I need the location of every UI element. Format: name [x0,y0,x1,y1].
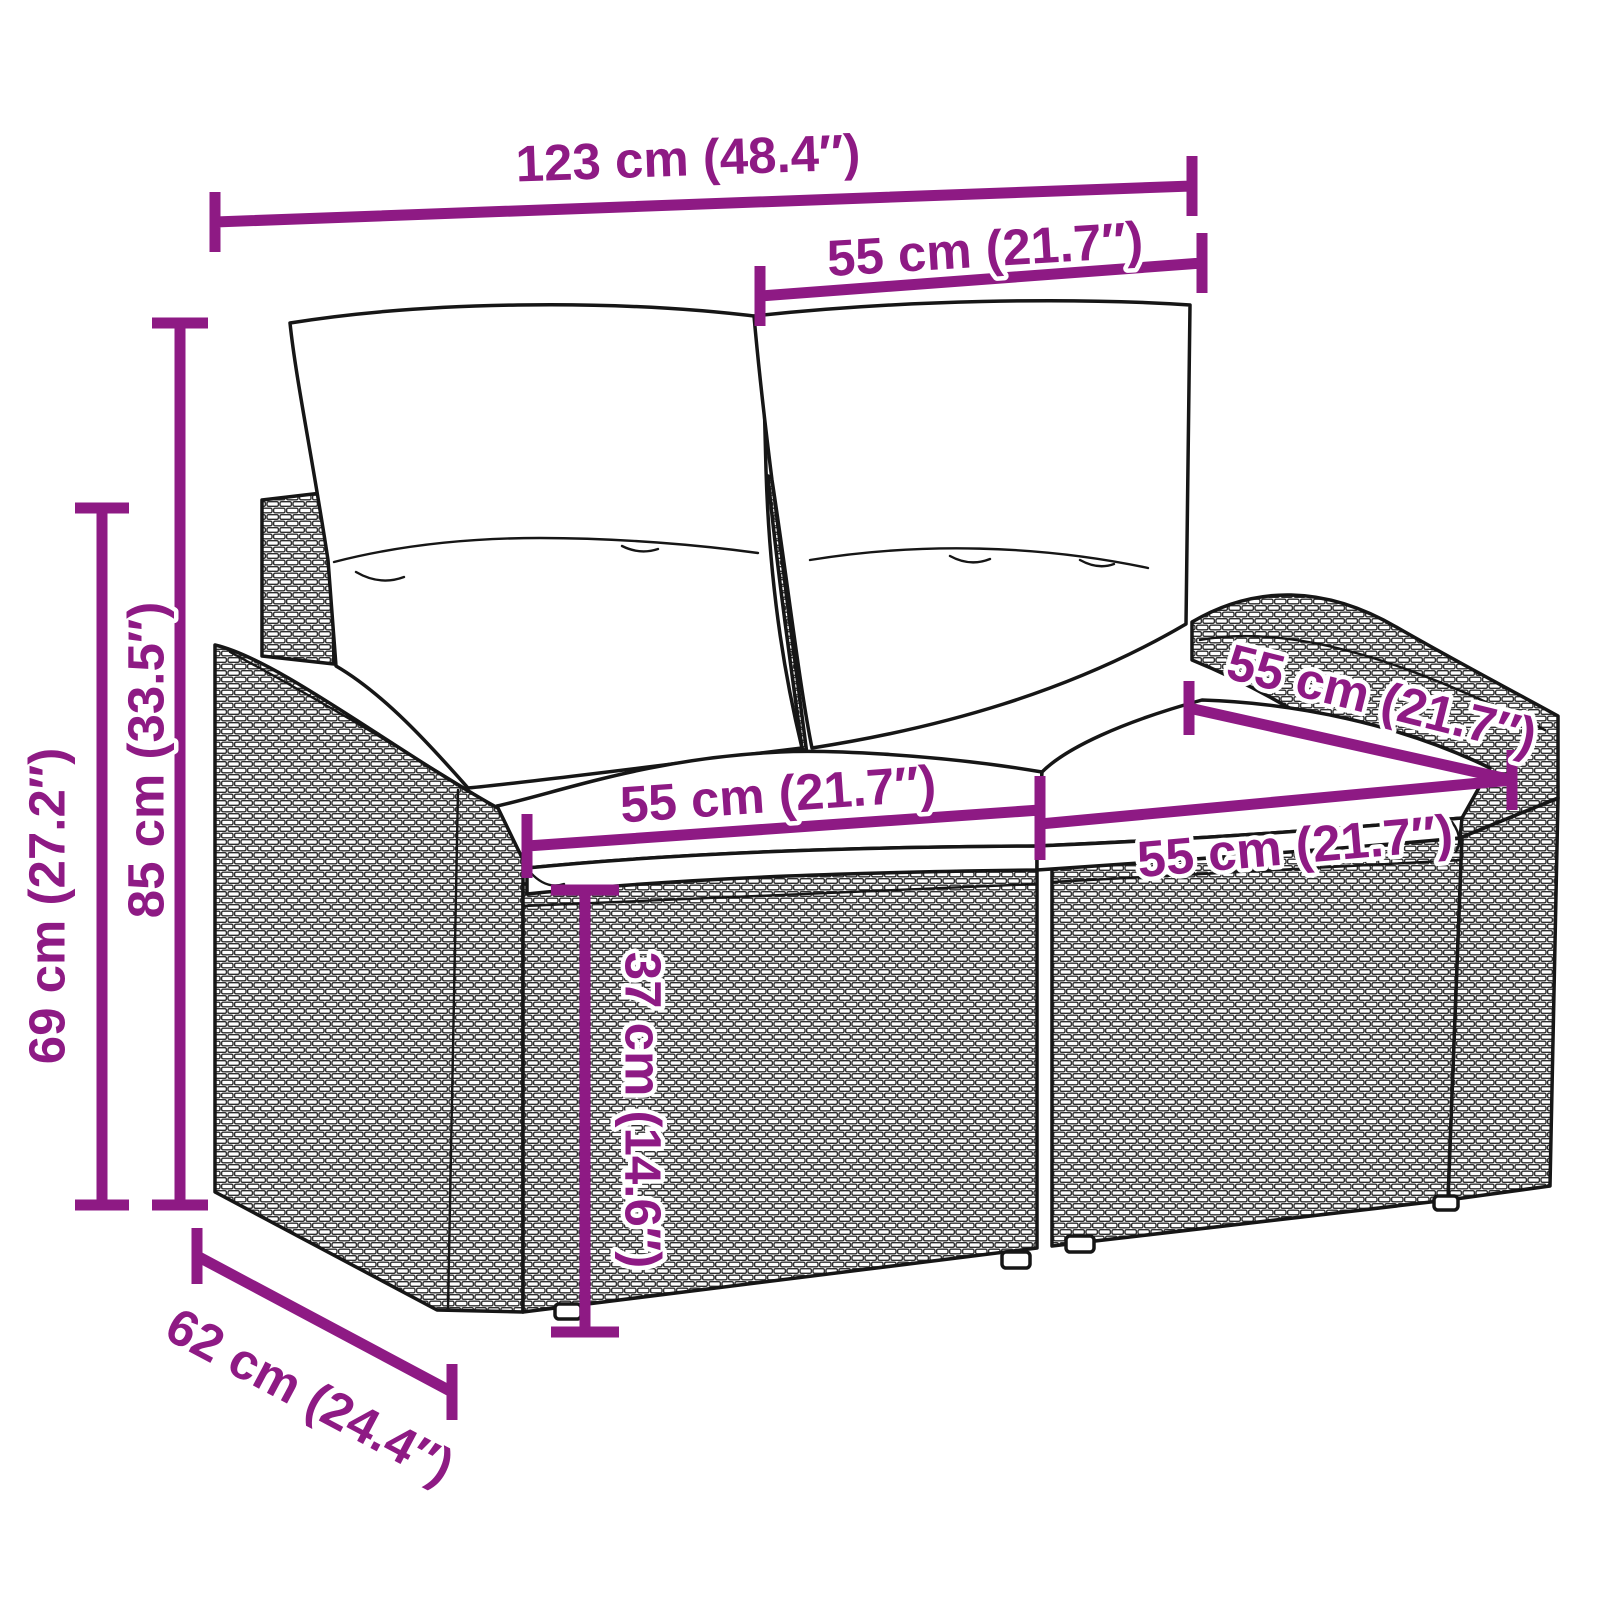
diagram-canvas: 123 cm (48.4″) 55 cm (21.7″) 85 cm (33.5… [0,0,1600,1600]
sofa-foot [555,1304,581,1319]
back-pillow-right [754,301,1190,748]
dim-frame-height-label: 69 cm (27.2″) [19,748,76,1064]
sofa-foot [1434,1196,1458,1210]
back-pillow-left [290,305,802,788]
dim-depth-label: 62 cm (24.4″) [157,1297,463,1496]
sofa-foot [1002,1252,1030,1268]
dim-total-height-label: 85 cm (33.5″) [118,602,175,918]
dim-overall-width-label: 123 cm (48.4″) [515,124,862,193]
right-side-panel [1448,798,1558,1200]
dim-frame-height: 69 cm (27.2″) [19,508,130,1205]
seat-base-right [1052,837,1462,1246]
seat-base-left [523,861,1037,1312]
dim-total-height: 85 cm (33.5″) [118,323,209,1205]
sofa-foot [1066,1236,1094,1252]
dimension-diagram: 123 cm (48.4″) 55 cm (21.7″) 85 cm (33.5… [0,0,1600,1600]
dim-seat-height-label: 37 cm (14.6″) [615,952,672,1268]
